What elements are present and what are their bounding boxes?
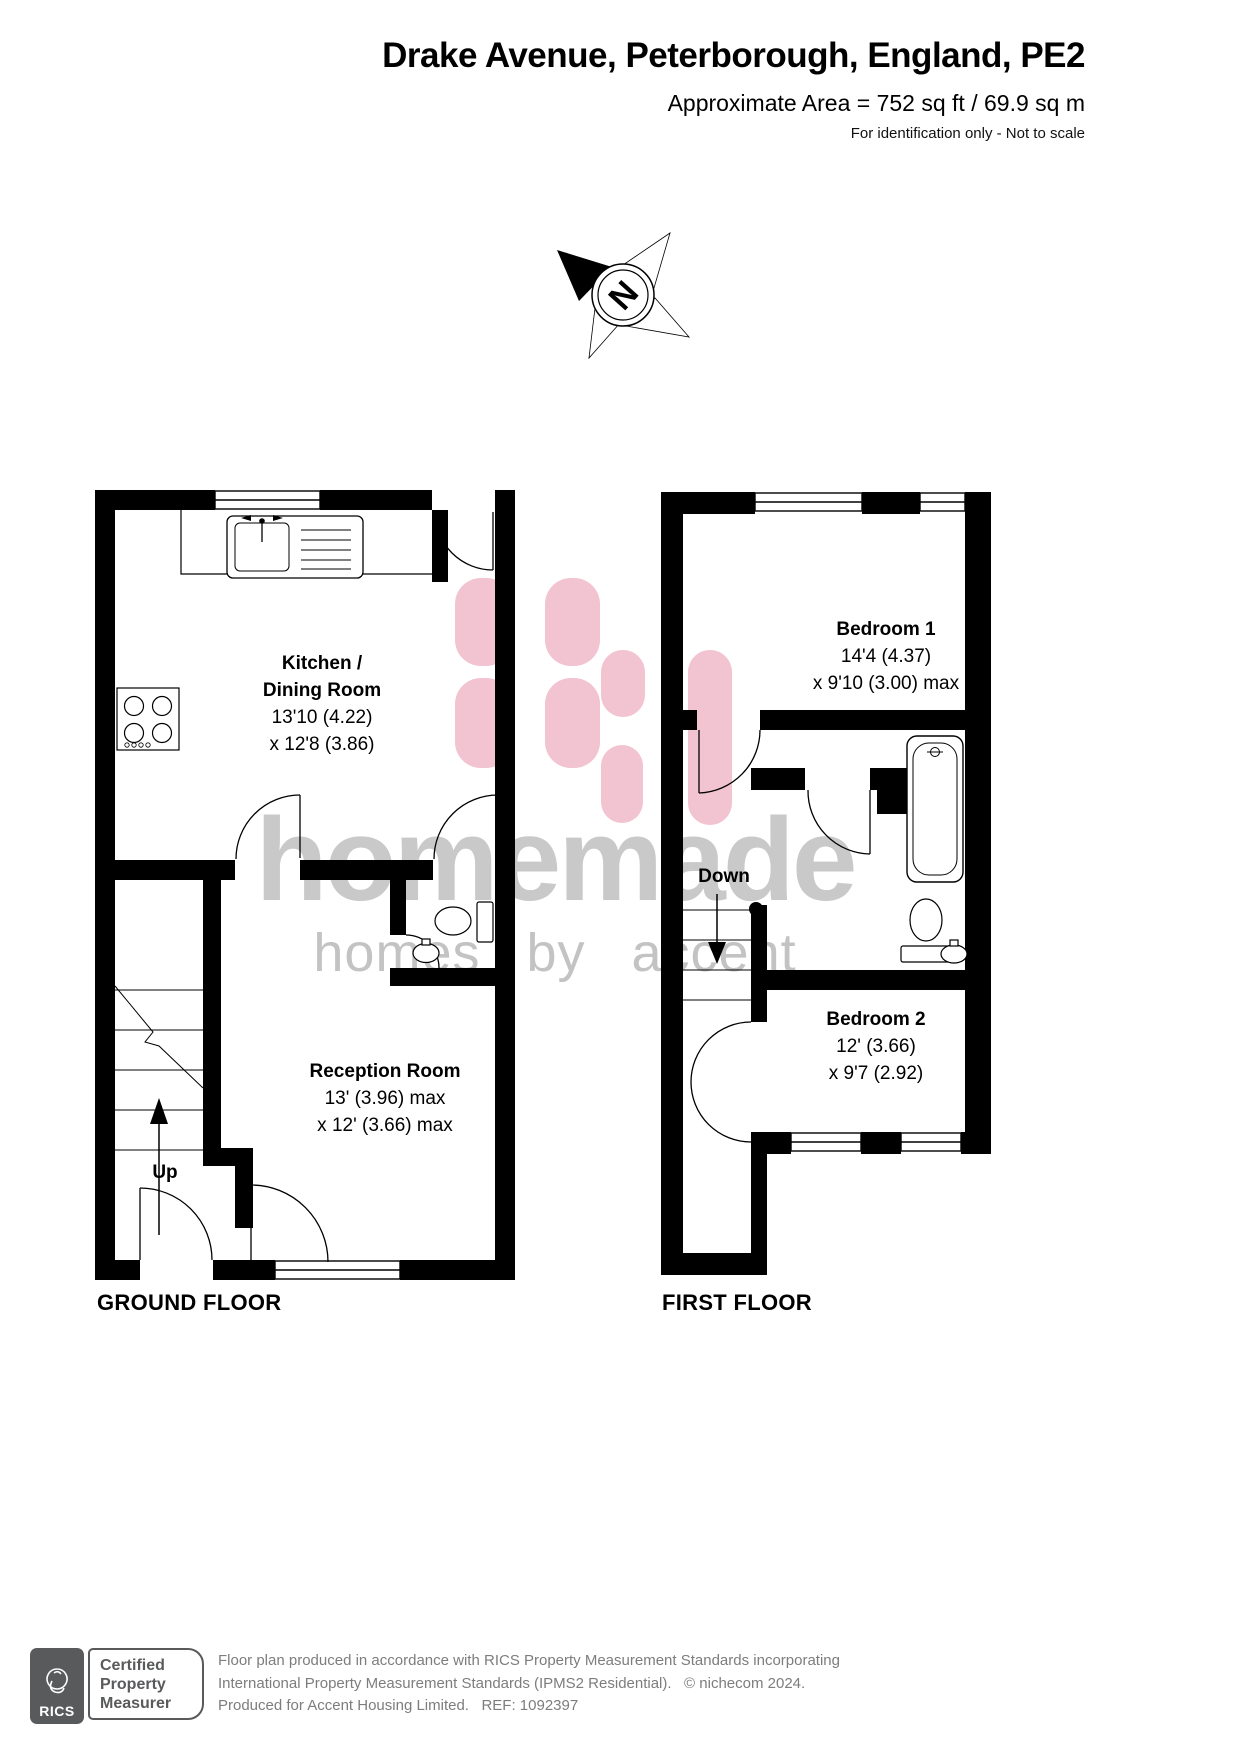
wc-basin-icon	[413, 939, 439, 963]
cert-line: Property	[100, 1675, 202, 1694]
footer-line: Produced for Accent Housing Limited. REF…	[218, 1695, 840, 1718]
room-dimensions: 12' (3.66)	[751, 1033, 1001, 1060]
area-subtitle: Approximate Area = 752 sq ft / 69.9 sq m	[382, 90, 1085, 117]
cert-line: Certified	[100, 1656, 202, 1675]
scale-disclaimer: For identification only - Not to scale	[382, 125, 1085, 142]
room-dimensions: x 12'8 (3.86)	[197, 731, 447, 758]
room-dimensions: 14'4 (4.37)	[761, 643, 1011, 670]
stairs-up-label: Up	[135, 1162, 195, 1184]
room-name: Reception Room	[260, 1058, 510, 1085]
rics-text: RICS	[39, 1703, 74, 1719]
floorplan-page: { "header": { "title": "Drake Avenue, Pe…	[0, 0, 1241, 1755]
hob-icon	[117, 688, 179, 750]
rics-lion-icon	[42, 1665, 72, 1703]
room-dimensions: 13' (3.96) max	[260, 1085, 510, 1112]
reception-room-label: Reception Room 13' (3.96) max x 12' (3.6…	[260, 1058, 510, 1139]
compass-icon: N	[505, 195, 705, 395]
bathroom-basin-icon	[941, 940, 967, 963]
cert-line: Measurer	[100, 1694, 202, 1713]
kitchen-dining-label: Kitchen / Dining Room 13'10 (4.22) x 12'…	[197, 650, 447, 758]
certified-property-measurer-badge: Certified Property Measurer	[88, 1648, 204, 1720]
wc-toilet-icon	[435, 902, 493, 942]
room-name: Kitchen /	[197, 650, 447, 677]
bedroom1-label: Bedroom 1 14'4 (4.37) x 9'10 (3.00) max	[761, 616, 1011, 697]
first-floor-caption: FIRST FLOOR	[662, 1290, 812, 1316]
first-floor-plan	[655, 490, 995, 1290]
room-dimensions: x 9'10 (3.00) max	[761, 670, 1011, 697]
room-name: Bedroom 2	[751, 1006, 1001, 1033]
footer-line: Floor plan produced in accordance with R…	[218, 1650, 840, 1673]
ground-floor-caption: GROUND FLOOR	[97, 1290, 281, 1316]
stairs-down-label: Down	[689, 866, 759, 888]
room-name: Bedroom 1	[761, 616, 1011, 643]
room-dimensions: 13'10 (4.22)	[197, 704, 447, 731]
sink-icon	[227, 515, 363, 578]
room-dimensions: x 12' (3.66) max	[260, 1112, 510, 1139]
room-name: Dining Room	[197, 677, 447, 704]
header: Drake Avenue, Peterborough, England, PE2…	[382, 36, 1085, 142]
page-title: Drake Avenue, Peterborough, England, PE2	[382, 36, 1085, 76]
room-dimensions: x 9'7 (2.92)	[751, 1060, 1001, 1087]
footer-disclaimer: Floor plan produced in accordance with R…	[218, 1650, 840, 1718]
stairs-up-icon	[115, 986, 203, 1235]
bath-icon	[907, 736, 963, 882]
rics-logo: RICS	[30, 1648, 84, 1724]
bedroom2-label: Bedroom 2 12' (3.66) x 9'7 (2.92)	[751, 1006, 1001, 1087]
footer-line: International Property Measurement Stand…	[218, 1673, 840, 1696]
